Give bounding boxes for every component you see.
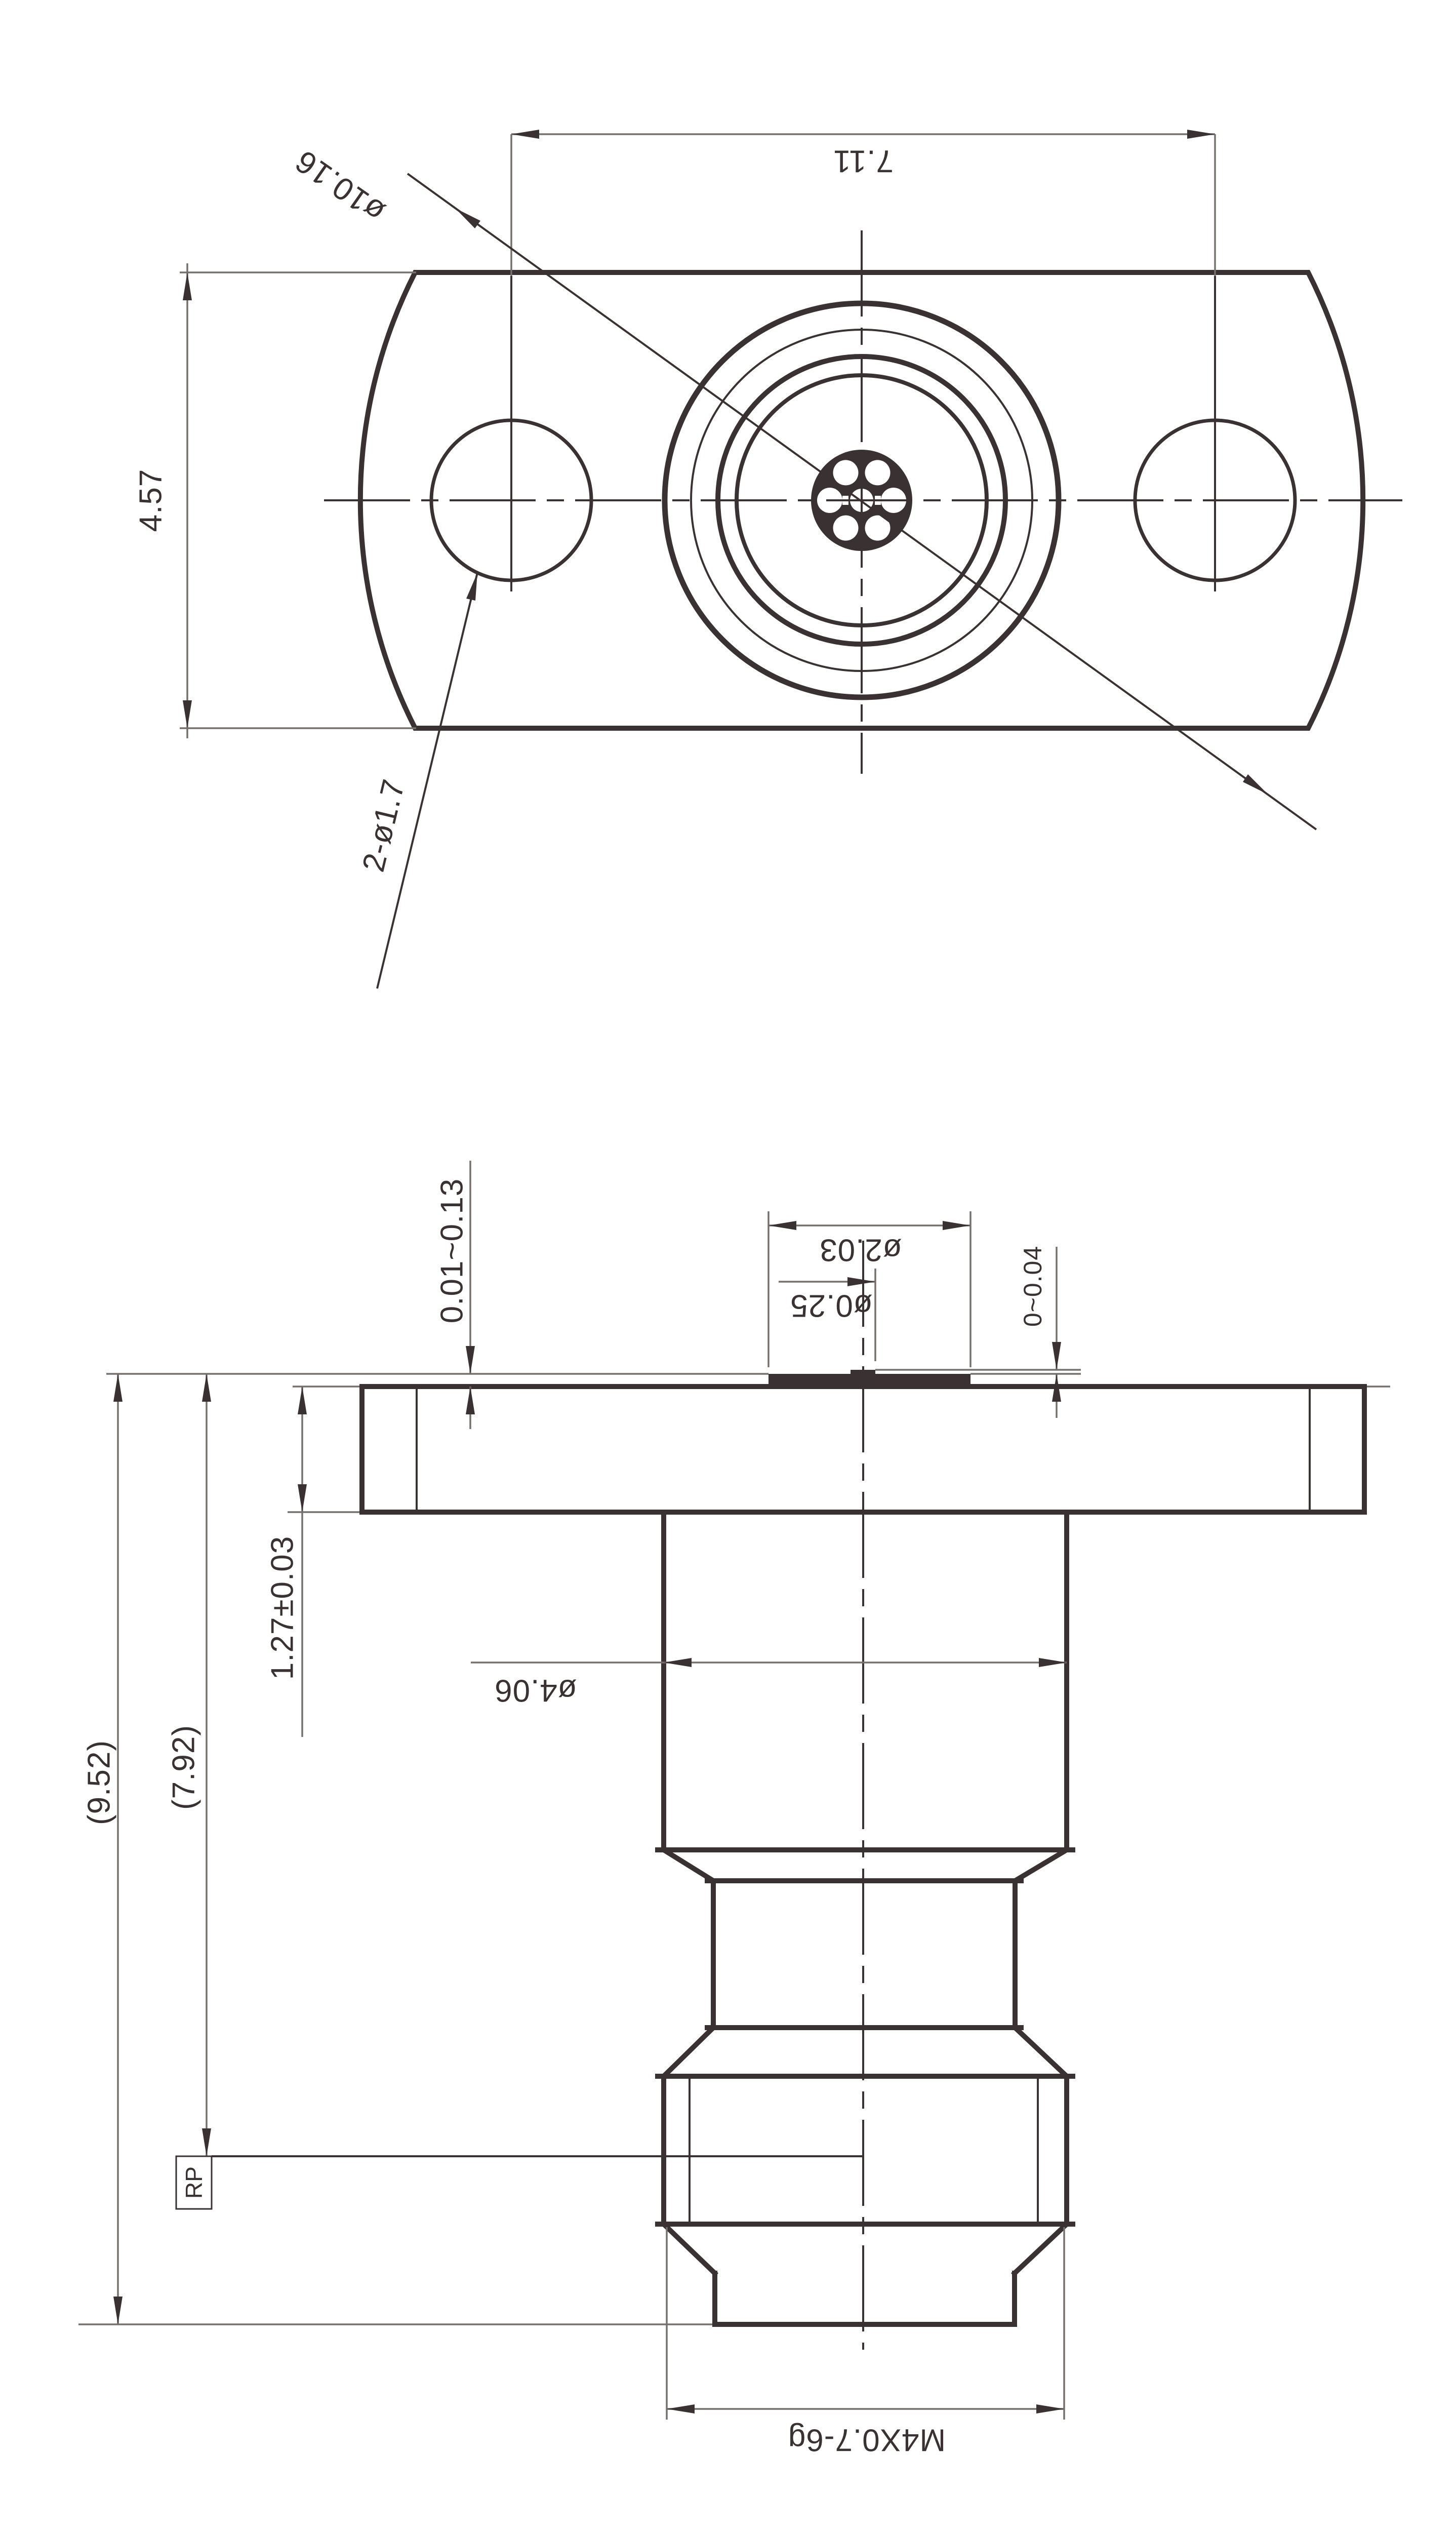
dim-flange-thickness-label: 1.27±0.03 [265,1536,300,1680]
dim-reference-plane-length-label: (7.92) [167,1725,201,1810]
center-pin-tip [851,1370,875,1375]
bead-hole-5 [833,460,859,485]
reference-plane-callout: RP [176,2156,863,2209]
dim-flange-thickness: 1.27±0.03 [265,1387,307,1737]
dim-pin-recess: 0~0.04 [1019,1246,1061,1418]
connector-body-profile [658,1512,1073,2324]
dim-insulator-protrusion-label: 0.01~0.13 [435,1178,470,1324]
dim-body-diameter-label: ø4.06 [494,1673,577,1708]
dim-thread-spec: M4X0.7-6g [667,2227,1064,2458]
reference-plane-label: RP [181,2166,207,2199]
dim-mounting-holes-label: 2-ø1.7 [356,776,412,875]
arrow-lower-right [1243,774,1268,795]
dim-insulator-diameter-label: ø2.03 [819,1233,902,1268]
arrow-up [183,272,192,300]
profile-view: 0.01~0.13 ø2.03 ø0.25 0~0.04 [78,1161,1390,2458]
bead-hole-6 [865,460,891,485]
dim-hole-spacing-label: 7.11 [833,144,894,179]
dim-pin-recess-label: 0~0.04 [1019,1246,1047,1327]
dim-overall-length: (9.52) [82,1374,123,2324]
dim-pin-diameter: ø0.25 [779,1269,875,1361]
dim-thread-spec-label: M4X0.7-6g [788,2423,946,2458]
arrow-leader [466,573,477,601]
arrow-right [1187,130,1215,139]
dim-overall-length-label: (9.52) [82,1740,117,1825]
dim-reference-plane-length: (7.92) [167,1374,212,2156]
dim-mounting-holes: 2-ø1.7 [356,573,477,988]
dim-flange-diameter-label: ø10.16 [289,143,392,230]
dim-hole-spacing: 7.11 [511,130,1215,179]
arrow-upper-left [455,208,480,228]
arrow-down [183,700,192,728]
bead-hole-3 [833,516,859,541]
flange-face-view: 7.11 4.57 ø10.16 2-ø1.7 [134,130,1403,988]
dim-body-diameter: ø4.06 [471,1658,1067,1708]
arrow-left [511,130,539,139]
connector-technical-drawing: 7.11 4.57 ø10.16 2-ø1.7 [0,0,1456,2532]
dim-pin-diameter-label: ø0.25 [790,1288,873,1323]
dim-flange-height-label: 4.57 [134,469,169,532]
